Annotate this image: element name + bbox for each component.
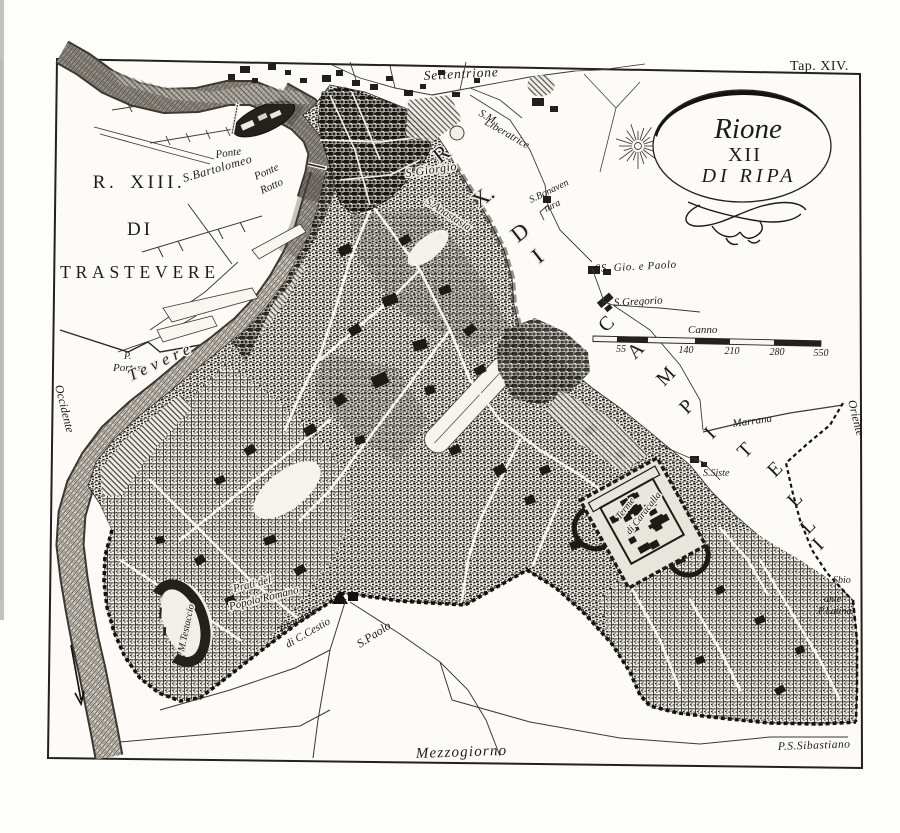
svg-text:XII: XII: [728, 144, 762, 166]
svg-text:Sbio: Sbio: [833, 575, 851, 586]
svg-text:55: 55: [616, 344, 626, 355]
svg-text:P.: P.: [123, 351, 131, 362]
svg-text:ante: ante: [824, 594, 842, 605]
svg-text:DI RIPA: DI RIPA: [701, 165, 797, 187]
svg-text:Canno: Canno: [688, 324, 718, 336]
svg-text:P.S.Sibastiano: P.S.Sibastiano: [777, 738, 851, 753]
svg-text:TRASTEVERE: TRASTEVERE: [60, 262, 220, 282]
svg-text:Tap. XIV.: Tap. XIV.: [790, 59, 849, 74]
svg-text:280: 280: [770, 347, 785, 358]
svg-text:S.Siste: S.Siste: [703, 468, 730, 479]
svg-text:R. XIII.: R. XIII.: [93, 172, 185, 193]
svg-text:210: 210: [725, 346, 740, 357]
svg-text:Rione: Rione: [713, 113, 782, 145]
svg-text:550: 550: [814, 348, 829, 359]
svg-text:140: 140: [679, 345, 694, 356]
svg-text:P.Latina: P.Latina: [817, 606, 851, 617]
svg-text:DI: DI: [127, 219, 153, 240]
svg-text:Mezzogiorno: Mezzogiorno: [415, 743, 508, 762]
